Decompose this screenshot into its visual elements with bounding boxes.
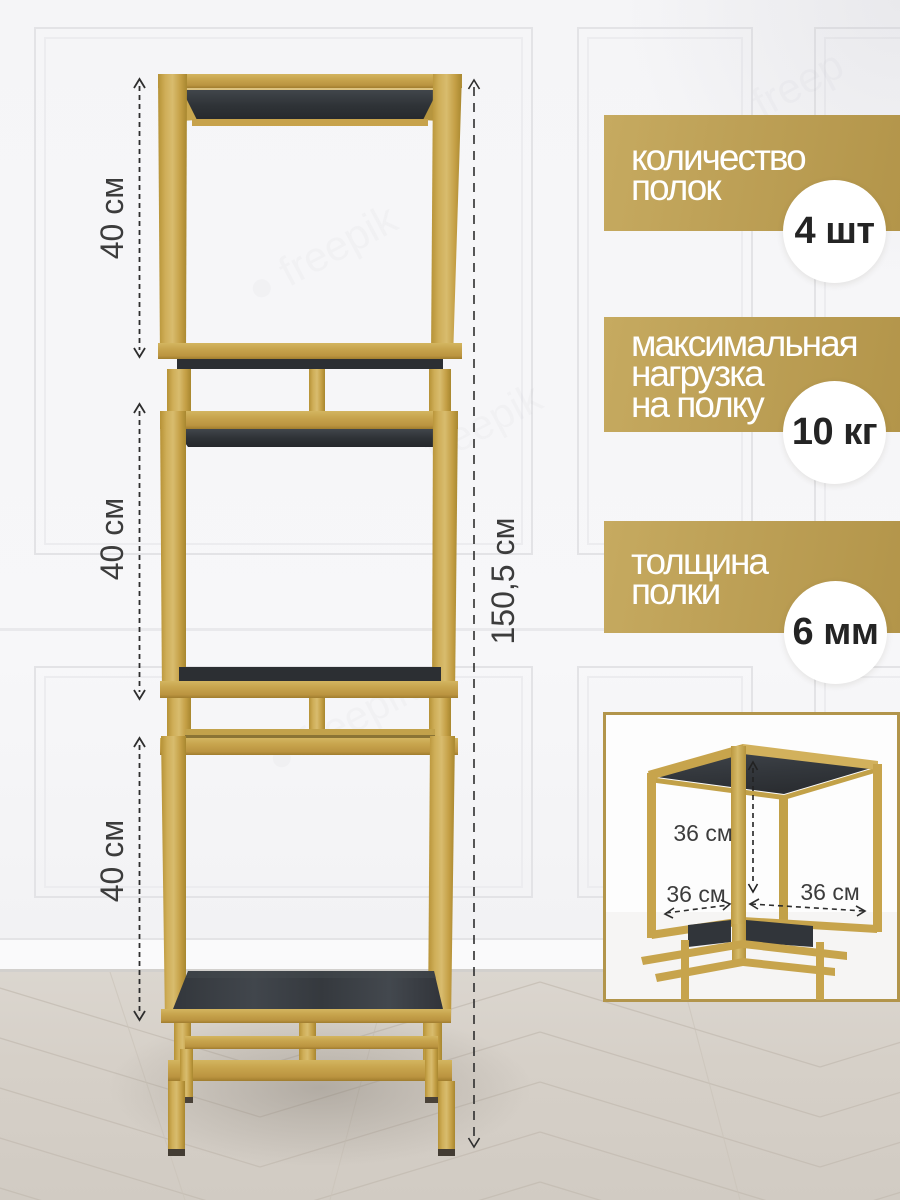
svg-text:40 см: 40 см [94, 177, 130, 259]
svg-text:36 см: 36 см [666, 881, 725, 907]
svg-text:40 см: 40 см [94, 498, 130, 580]
svg-text:36 см: 36 см [800, 879, 859, 905]
svg-text:150,5 см: 150,5 см [485, 518, 521, 645]
svg-text:40 см: 40 см [94, 820, 130, 902]
svg-text:36 см: 36 см [673, 820, 732, 846]
